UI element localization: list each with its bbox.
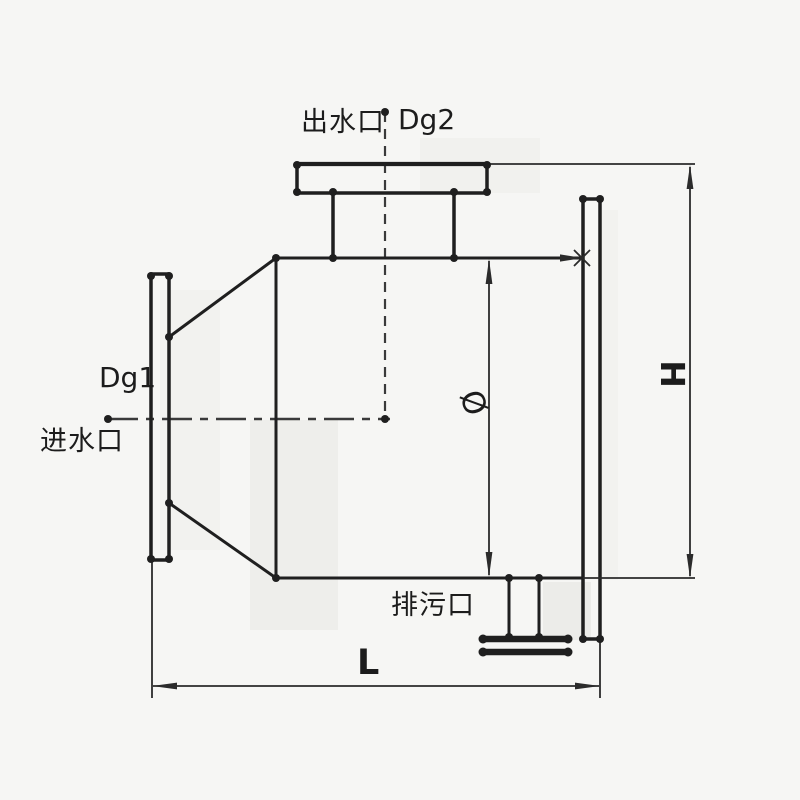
arrow-up-icon <box>486 259 493 284</box>
arrow-down-icon <box>486 552 493 577</box>
arrow-left-icon <box>152 683 177 690</box>
inlet-diameter-label: Dg1 <box>99 364 156 392</box>
drain-nozzle <box>509 578 539 637</box>
length-dimension-label: L <box>357 646 379 681</box>
outlet-nozzle <box>333 193 454 258</box>
drain-port-label: 排污口 <box>391 592 475 619</box>
arrow-up-icon <box>687 165 694 189</box>
length-dimension-line <box>152 683 600 690</box>
inlet-port-label: 进水口 <box>40 428 124 455</box>
outlet-port-label: 出水口 <box>301 109 385 136</box>
arrow-right-icon <box>575 683 600 690</box>
arrow-down-icon <box>687 554 694 578</box>
outlet-diameter-label: Dg2 <box>398 106 455 134</box>
dimension-origin-marker <box>560 250 590 266</box>
scan-artifacts <box>160 138 618 640</box>
height-dimension-label: H <box>655 356 691 392</box>
outlet-end-flange <box>583 199 600 639</box>
drain-flange <box>483 639 568 652</box>
drawing-canvas: 出水口 Dg2 Dg1 进水口 排污口 L H Ø <box>0 0 800 800</box>
